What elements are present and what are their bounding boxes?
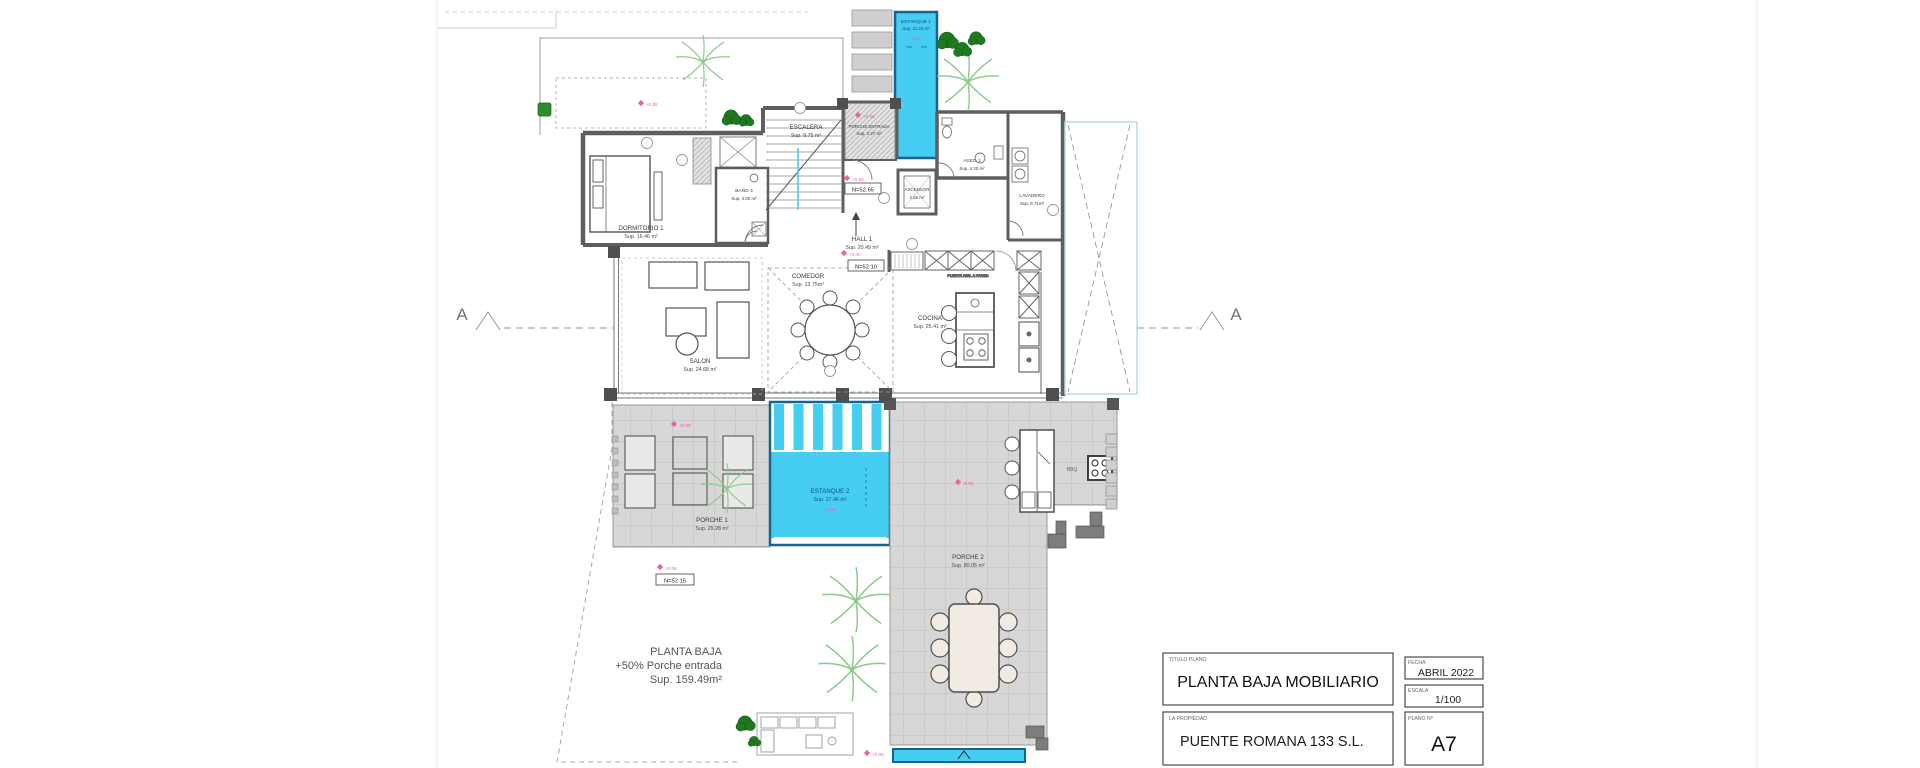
titleblock-fecha-label: FECHA bbox=[1408, 660, 1426, 666]
room-label-porche2: PORCHE 2 bbox=[952, 554, 984, 561]
titleblock-escala: 1/100 bbox=[1435, 694, 1461, 706]
summary-line2: +50% Porche entrada bbox=[615, 660, 723, 672]
sheet-edges bbox=[437, 0, 1757, 768]
entry-pavers bbox=[852, 10, 892, 92]
title-block: TITULO PLANO PLANTA BAJA MOBILIARIO LA P… bbox=[1163, 653, 1483, 765]
room-area-porche2: Sup. 80.05 m² bbox=[951, 563, 985, 569]
room-label-bbq: BBQ bbox=[1067, 467, 1078, 473]
room-area-bano4: Sup. 4.00 m² bbox=[731, 196, 757, 201]
room-label-porche-entrada: PORCHE ENTRADA bbox=[849, 124, 890, 129]
room-label-escalera: ESCALERA bbox=[789, 124, 823, 131]
porch-2: BBQ PORCHE 2 Sup. 80.05 m² -0.05 bbox=[884, 398, 1119, 750]
summary-line3: Sup. 159.49m² bbox=[650, 674, 722, 686]
wardrobe bbox=[693, 138, 711, 184]
level-porche1: +0.05 bbox=[679, 423, 691, 428]
room-label-porche1: PORCHE 1 bbox=[696, 517, 728, 524]
room-area-cocina: Sup. 25.41 m² bbox=[913, 324, 947, 330]
section-label-right: A bbox=[1230, 305, 1242, 324]
titleblock-propiedad: PUENTE ROMANA 133 S.L. bbox=[1180, 734, 1364, 750]
room-area-lavadero: Sup. 9.71m² bbox=[1020, 201, 1044, 206]
floor-plan-drawing: ESTANQUE 1 Sup. 11.24 m² -0.30 PORCHE 1 … bbox=[0, 0, 1920, 768]
titleblock-propiedad-label: LA PROPIEDAD bbox=[1169, 716, 1207, 722]
level-box-escalera: N=52.65 bbox=[852, 188, 874, 194]
site-boundary-lines bbox=[437, 10, 843, 762]
summary-line1: PLANTA BAJA bbox=[650, 646, 723, 658]
aseo-fixtures bbox=[942, 118, 1003, 163]
level-box-exterior: N=52.15 bbox=[664, 579, 686, 585]
bathroom-4 bbox=[716, 168, 768, 243]
room-area-dormitorio1: Sup. 16.46 m² bbox=[624, 234, 658, 240]
room-label-estanque1: ESTANQUE 1 bbox=[901, 19, 931, 25]
room-area-aseo1: Sup. 4.20 m² bbox=[959, 166, 985, 171]
pool-estanque-2: ESTANQUE 2 Sup. 27.46 m² -0.30 bbox=[770, 402, 890, 545]
summary-text: PLANTA BAJA +50% Porche entrada Sup. 159… bbox=[615, 646, 723, 686]
floor-plan-sheet: ESTANQUE 1 Sup. 11.24 m² -0.30 PORCHE 1 … bbox=[0, 0, 1920, 768]
room-label-hall1: HALL 1 bbox=[852, 236, 873, 243]
level-estanque2: -0.30 bbox=[825, 507, 836, 512]
section-label-left: A bbox=[456, 305, 468, 324]
titleblock-escala-label: ESCALA bbox=[1408, 688, 1429, 694]
exterior-ramp-area bbox=[1065, 122, 1137, 394]
level-bottom: +0.05 bbox=[872, 752, 884, 757]
titleblock-plano-label: PLANO Nº bbox=[1408, 716, 1433, 722]
room-label-dormitorio1: DORMITORIO 1 bbox=[618, 225, 664, 232]
room-area-hall1: Sup. 20.49 m² bbox=[845, 245, 879, 251]
room-label-aseo1: ASEO 1 bbox=[963, 158, 981, 164]
room-label-salon: SALON bbox=[690, 358, 711, 365]
room-area-estanque2: Sup. 27.46 m² bbox=[813, 497, 847, 503]
room-area-porche1: Sup. 29.28 m² bbox=[695, 526, 729, 532]
pool-bottom-strip: +0.05 bbox=[864, 749, 1025, 762]
shaft-void bbox=[720, 137, 756, 167]
salon-furniture bbox=[622, 258, 762, 394]
room-area-comedor: Sup. 13.75m² bbox=[792, 282, 824, 288]
room-label-cocina: COCINA bbox=[918, 315, 943, 322]
room-area-estanque1: Sup. 11.24 m² bbox=[902, 26, 930, 31]
room-label-estanque2: ESTANQUE 2 bbox=[811, 488, 850, 495]
level-courtyard: +0.05 bbox=[646, 102, 658, 107]
elevator bbox=[898, 170, 936, 214]
level-estanque1: -0.30 bbox=[911, 36, 922, 41]
level-porche2: -0.05 bbox=[963, 481, 974, 486]
titleblock-plano: A7 bbox=[1431, 733, 1457, 756]
room-label-lavadero: LAVADERO bbox=[1019, 193, 1045, 199]
level-box-hall: N=52.10 bbox=[855, 265, 877, 271]
titleblock-titulo-label: TITULO PLANO bbox=[1169, 657, 1206, 663]
titleblock-fecha: ABRIL 2022 bbox=[1418, 667, 1474, 679]
room-area-salon: Sup. 24.68 m² bbox=[683, 367, 717, 373]
porch-1: PORCHE 1 Sup. 29.28 m² +0.05 bbox=[612, 405, 770, 547]
room-area-escalera: Sup. 9.75 m² bbox=[791, 133, 822, 139]
level-exterior: +0.05 bbox=[665, 566, 677, 571]
room-area-ascensor: 2.56 m² bbox=[910, 195, 925, 200]
lavadero-appliances bbox=[1012, 148, 1028, 182]
level-hall: +0.00 bbox=[849, 252, 861, 257]
room-label-bano4: BAÑO 4 bbox=[735, 187, 753, 194]
titleblock-titulo: PLANTA BAJA MOBILIARIO bbox=[1177, 674, 1379, 691]
kitchen-note: PUERTA RIEL A PARED bbox=[947, 274, 988, 278]
bedroom-furniture bbox=[590, 156, 662, 232]
kitchen: PUERTA RIEL A PARED bbox=[891, 251, 1041, 394]
room-area-porche-entrada: Sup. 3.27 m² bbox=[856, 131, 882, 136]
level-escalera: +0.55 bbox=[852, 177, 864, 182]
room-label-ascensor: ASCENSOR bbox=[905, 187, 930, 192]
garden-furniture-outline bbox=[757, 713, 853, 755]
room-label-comedor: COMEDOR bbox=[792, 273, 825, 280]
pool-estanque-1: ESTANQUE 1 Sup. 11.24 m² -0.30 bbox=[895, 12, 937, 158]
level-entrada: +0.55 bbox=[863, 114, 875, 119]
